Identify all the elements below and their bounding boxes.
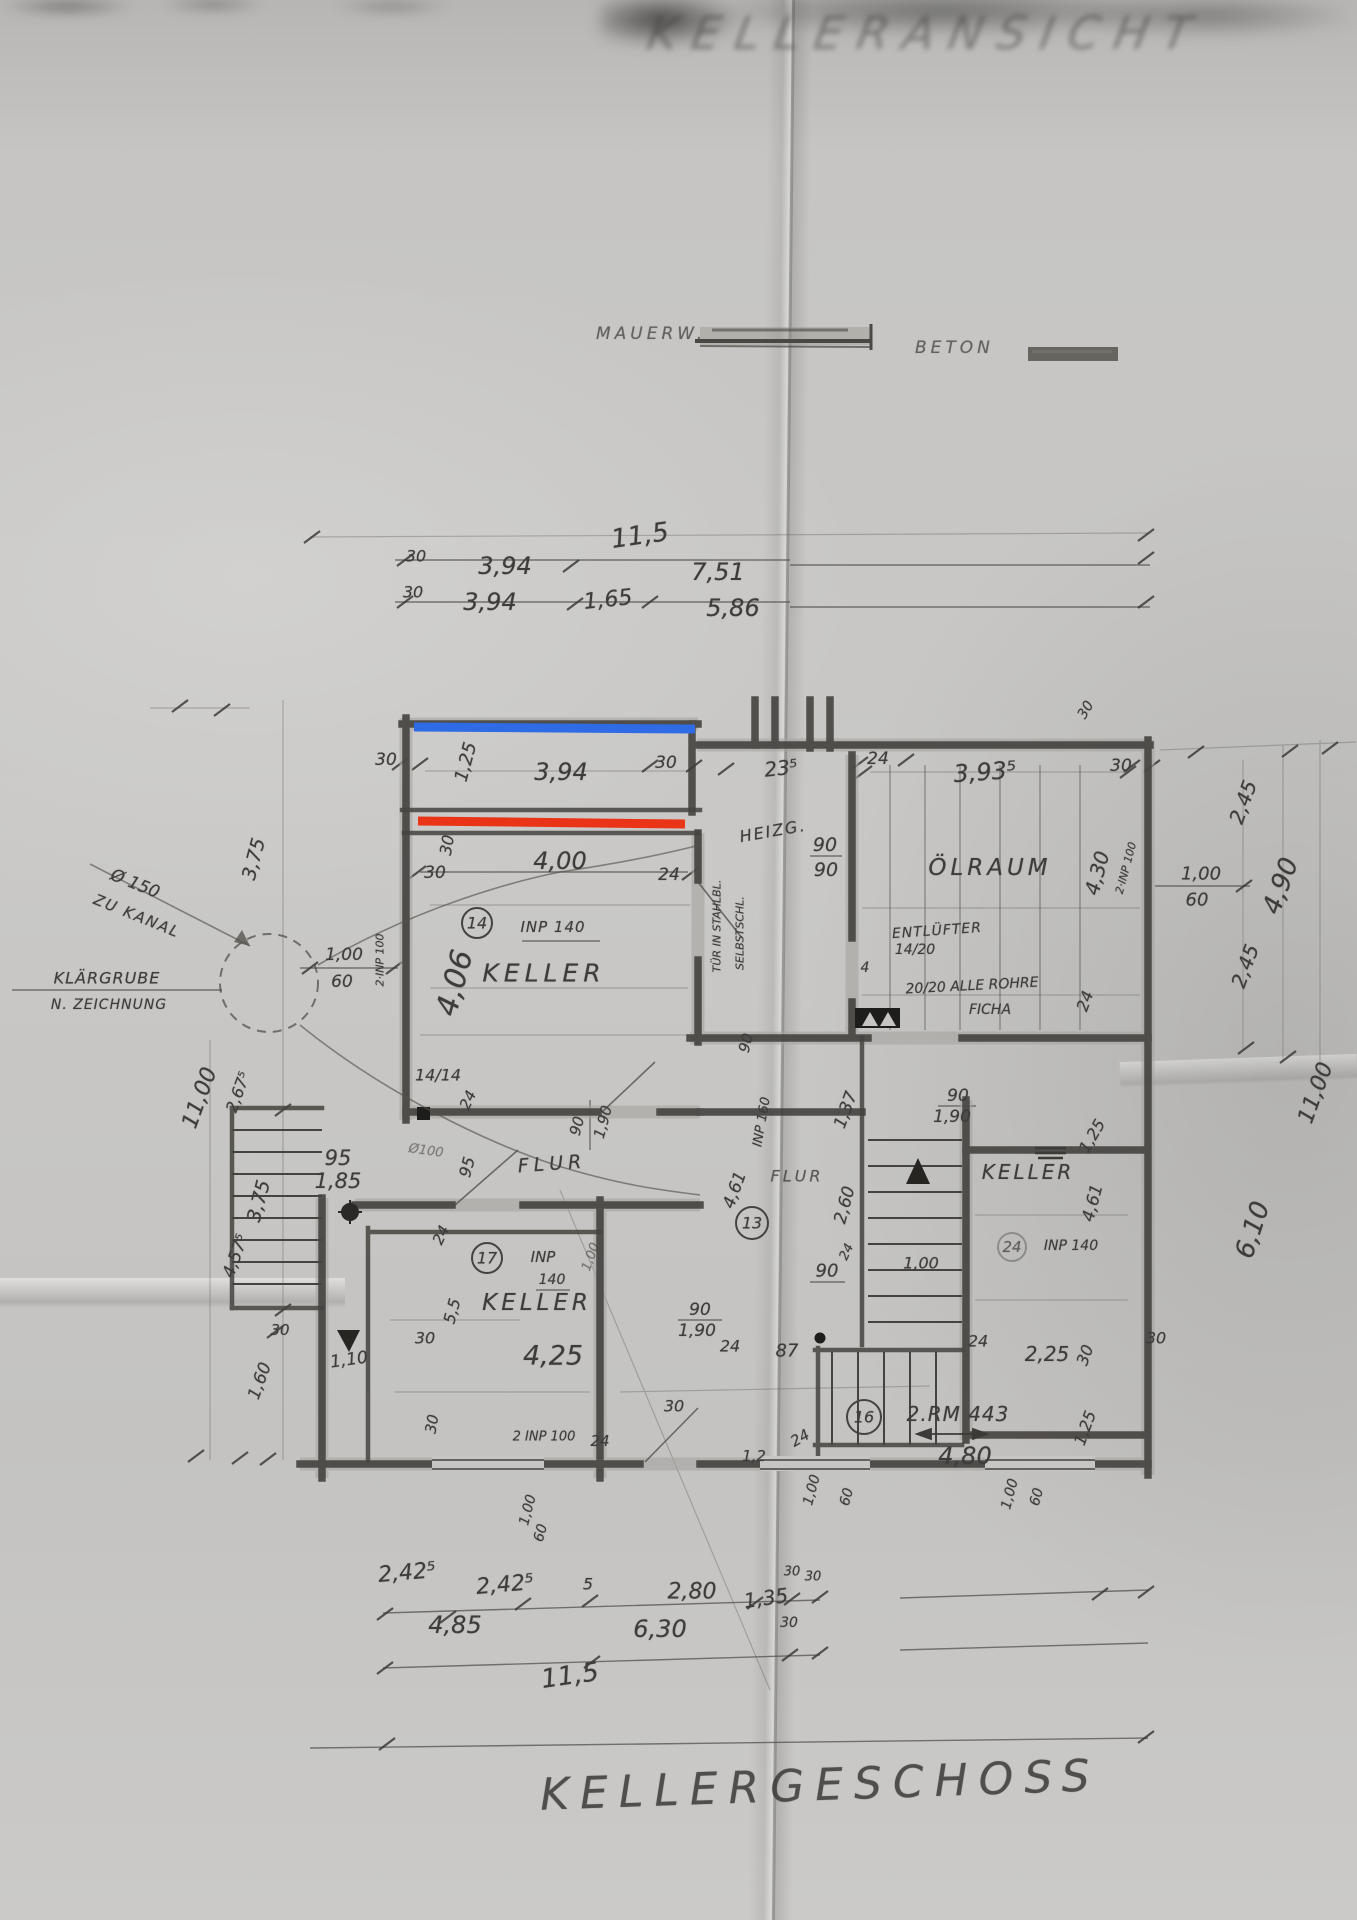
window-openings <box>432 1456 1095 1471</box>
oelraum-beam-lines <box>890 765 1080 1030</box>
callout-circles <box>462 908 1026 1434</box>
pipe-lines <box>90 845 700 1195</box>
chimney-symbol <box>855 1008 900 1028</box>
floor-plan-drawing <box>0 0 1357 1920</box>
stairs-down-arrow <box>337 1330 360 1352</box>
stairs-up-arrow <box>906 1158 930 1184</box>
red-highlight-line <box>418 821 685 824</box>
klaergrube-circle <box>220 934 318 1032</box>
legend-masonry-swatch <box>695 324 872 350</box>
legend-concrete-swatch <box>1028 347 1118 361</box>
stairs-left <box>232 1130 322 1284</box>
column-dot <box>815 1333 826 1344</box>
blue-highlight-line <box>414 727 695 729</box>
dim-arrow-480 <box>917 1429 987 1439</box>
scanned-floorplan-page: KELLERANSICHT MAUERW. BETON <box>0 0 1357 1920</box>
stairs-main <box>832 1140 962 1445</box>
